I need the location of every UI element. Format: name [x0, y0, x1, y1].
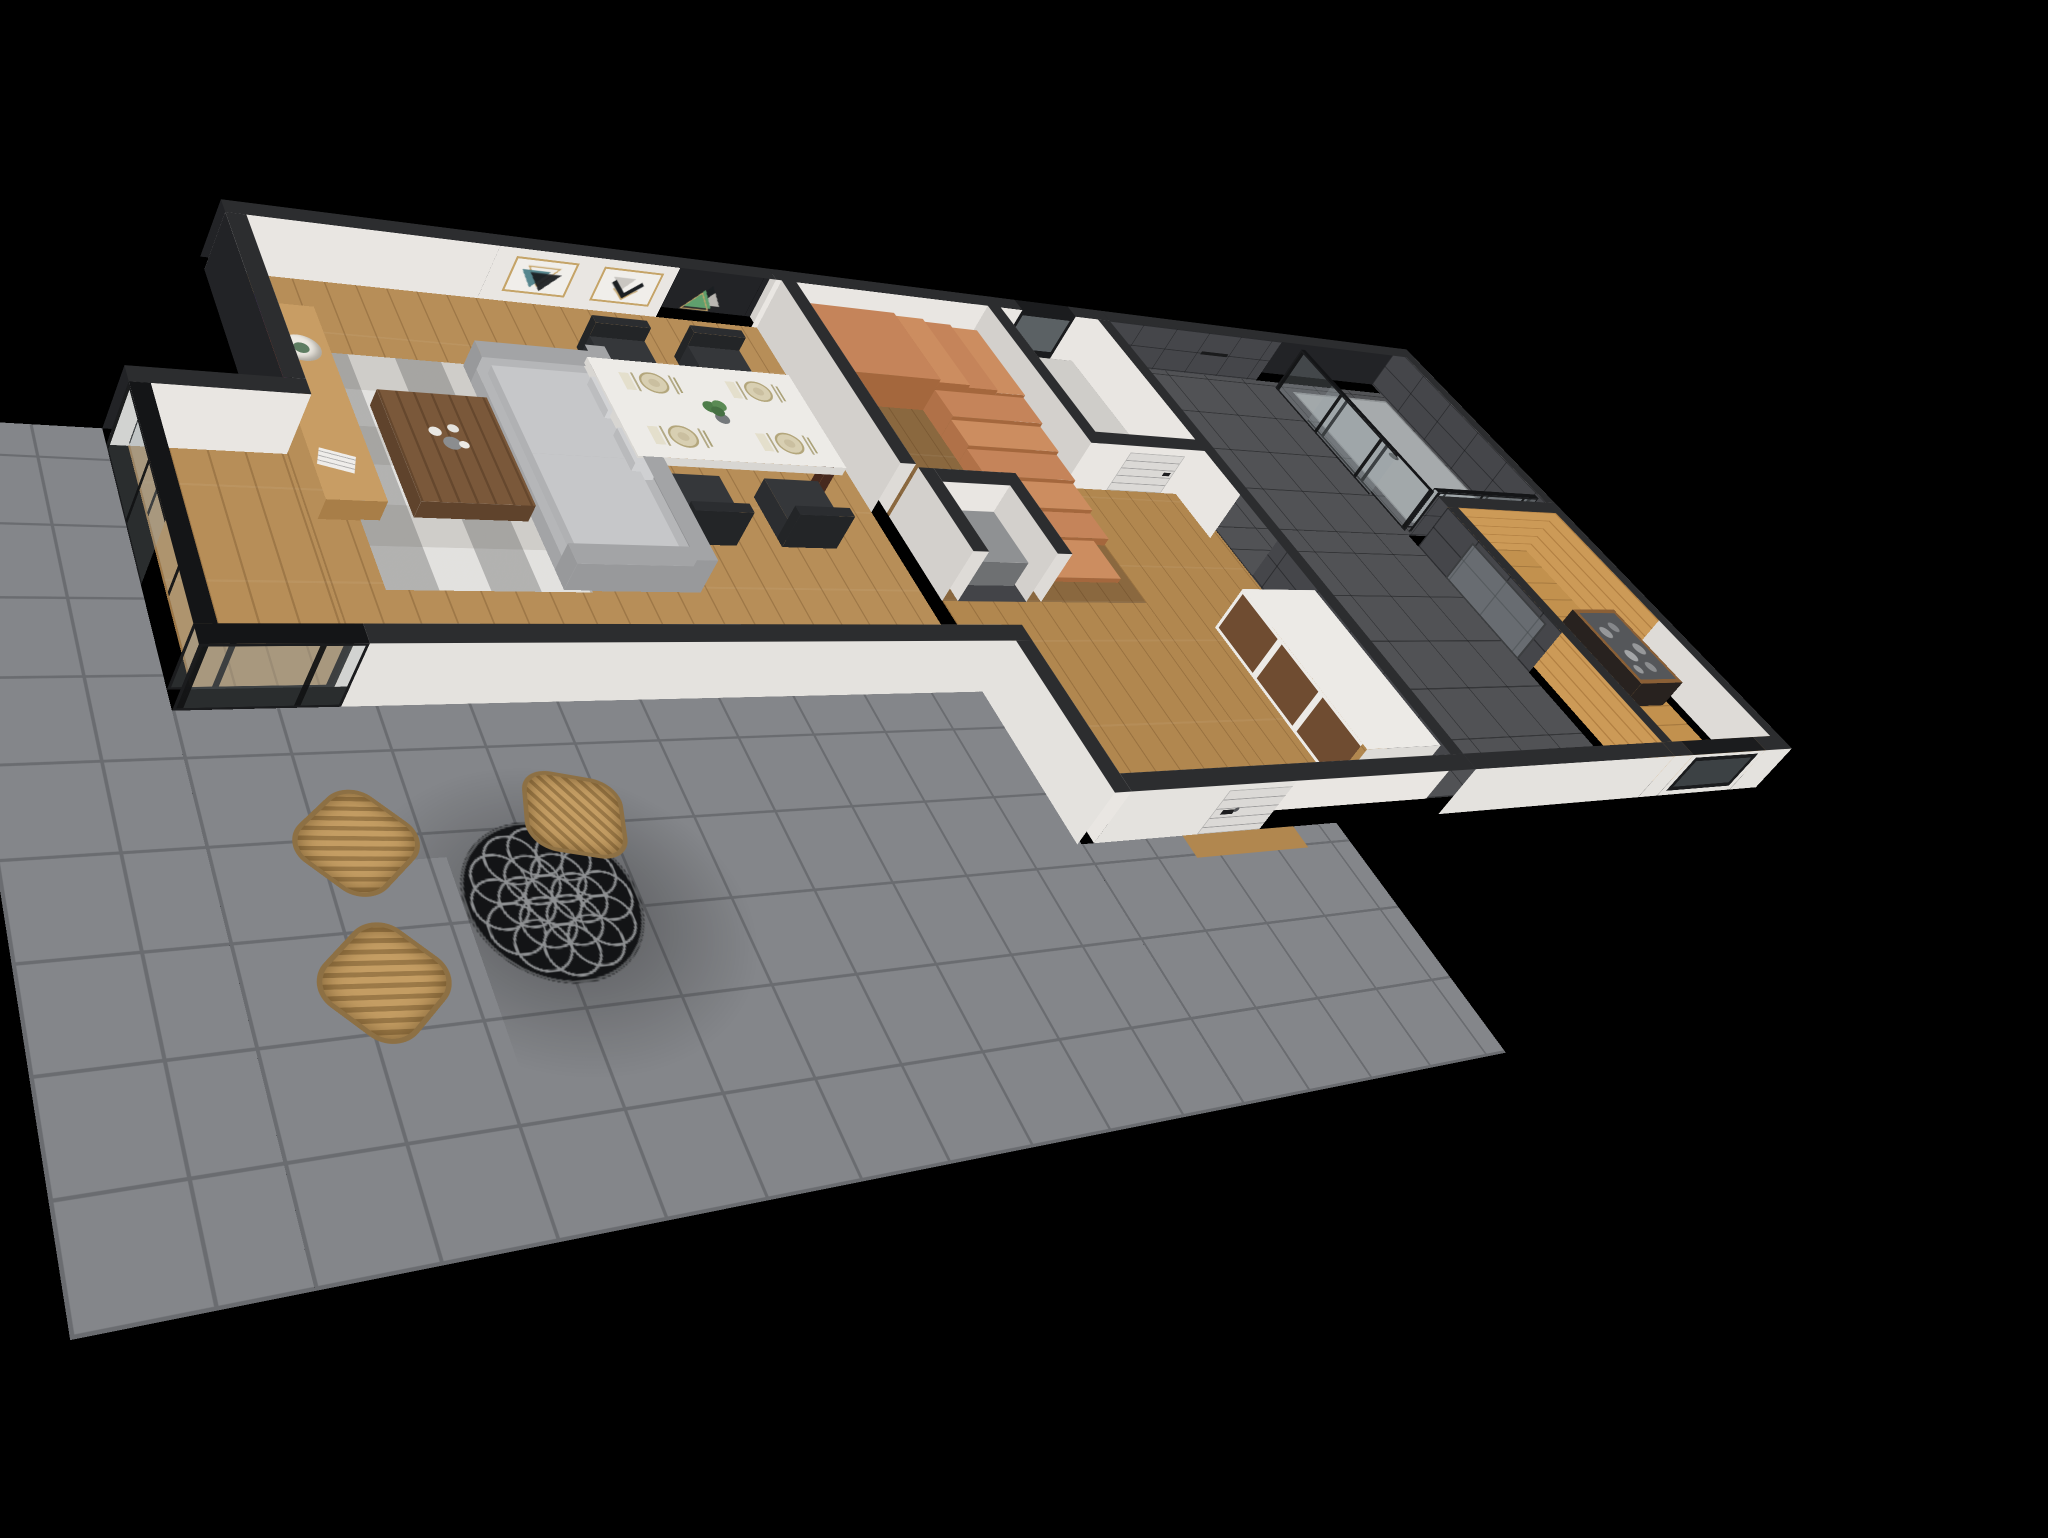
magazine [317, 447, 356, 473]
spoon-icon [702, 430, 713, 446]
place-setting-1 [616, 369, 690, 399]
flowers-white [427, 426, 444, 436]
spoon-icon [673, 377, 684, 393]
dining-plant [697, 399, 741, 426]
wc-door-handle-icon [1162, 473, 1171, 477]
plate-inner [676, 432, 692, 441]
art-frame-chevrons [589, 267, 664, 307]
art-frame-triangles-up [672, 277, 744, 316]
flowers-white-2 [446, 424, 461, 433]
knife-icon [801, 436, 815, 455]
place-setting-4 [753, 430, 825, 459]
place-setting-3 [645, 422, 721, 452]
floorplan-3d-render [0, 0, 2048, 1538]
shower-mixer-icon [1200, 351, 1228, 357]
tv-console-s [317, 499, 388, 521]
plate-inner [751, 387, 766, 396]
plate-inner [782, 439, 797, 448]
plant-leaves-3 [709, 406, 727, 417]
wc-door [1106, 453, 1185, 494]
camera-viewport [0, 0, 2048, 1538]
napkin [755, 433, 775, 451]
place-setting-2 [723, 378, 794, 406]
napkin [618, 372, 637, 390]
shower-head-icon [1348, 376, 1361, 381]
living-glass-corner-top [193, 623, 370, 644]
bathroom-door-handle-icon [1266, 574, 1275, 585]
shower-bar-icon [1321, 355, 1372, 364]
apartment-plan [0, 177, 1931, 1369]
plant-leaves-2 [709, 400, 729, 412]
plate-inner [647, 378, 662, 387]
dinner-plate [739, 380, 777, 403]
sofa-arm-south-s [564, 564, 713, 593]
plant-pot [713, 413, 733, 425]
living-glass-corner-pane-s [172, 643, 370, 710]
art-frame-triangles-down [501, 256, 579, 298]
entrance-door-knob-icon [1232, 807, 1240, 812]
